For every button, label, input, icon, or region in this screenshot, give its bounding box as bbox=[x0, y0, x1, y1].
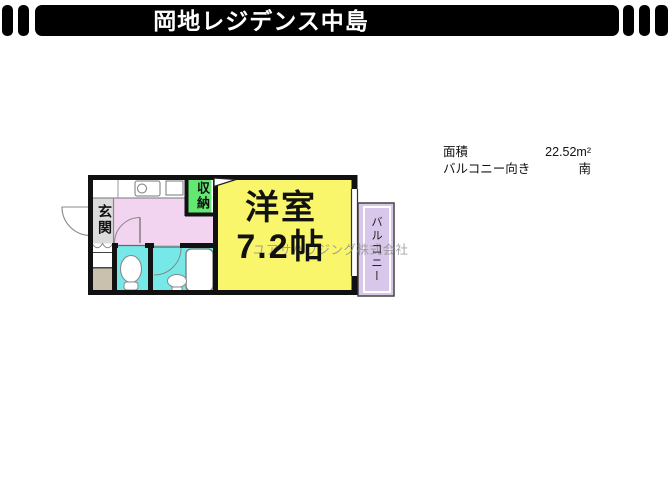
entrance-door-swing bbox=[62, 207, 91, 236]
living-room-size: 7.2帖 bbox=[216, 228, 346, 267]
info-row-area: 面積 22.52m² bbox=[443, 144, 591, 161]
facing-label: バルコニー向き bbox=[443, 161, 530, 178]
stove-icon bbox=[166, 181, 183, 195]
living-room-label: 洋室 7.2帖 bbox=[216, 189, 346, 267]
storage-label: 収納 bbox=[193, 181, 212, 211]
balcony-label: バルコニー bbox=[368, 216, 384, 284]
fridge-space-area bbox=[92, 178, 118, 198]
washbasin-icon bbox=[168, 275, 187, 288]
building-title: 岡地レジデンス中島 bbox=[35, 5, 487, 36]
sink-drain-icon bbox=[138, 184, 147, 193]
facing-value: 南 bbox=[578, 161, 591, 178]
bathtub-icon bbox=[186, 249, 213, 291]
toilet-icon bbox=[121, 256, 142, 283]
property-info: 面積 22.52m² バルコニー向き 南 bbox=[443, 144, 591, 178]
area-value: 22.52m² bbox=[545, 144, 591, 161]
utility-space-area bbox=[93, 253, 114, 268]
toilet-base-icon bbox=[124, 282, 138, 290]
living-room-name: 洋室 bbox=[216, 189, 346, 228]
floorplan-page: { "header": { "title": "岡地レジデンス中島" }, "i… bbox=[0, 0, 670, 496]
area-label: 面積 bbox=[443, 144, 468, 161]
entrance-label: 玄関 bbox=[95, 204, 115, 236]
info-row-facing: バルコニー向き 南 bbox=[443, 161, 591, 178]
shoe-box-area bbox=[93, 268, 114, 293]
